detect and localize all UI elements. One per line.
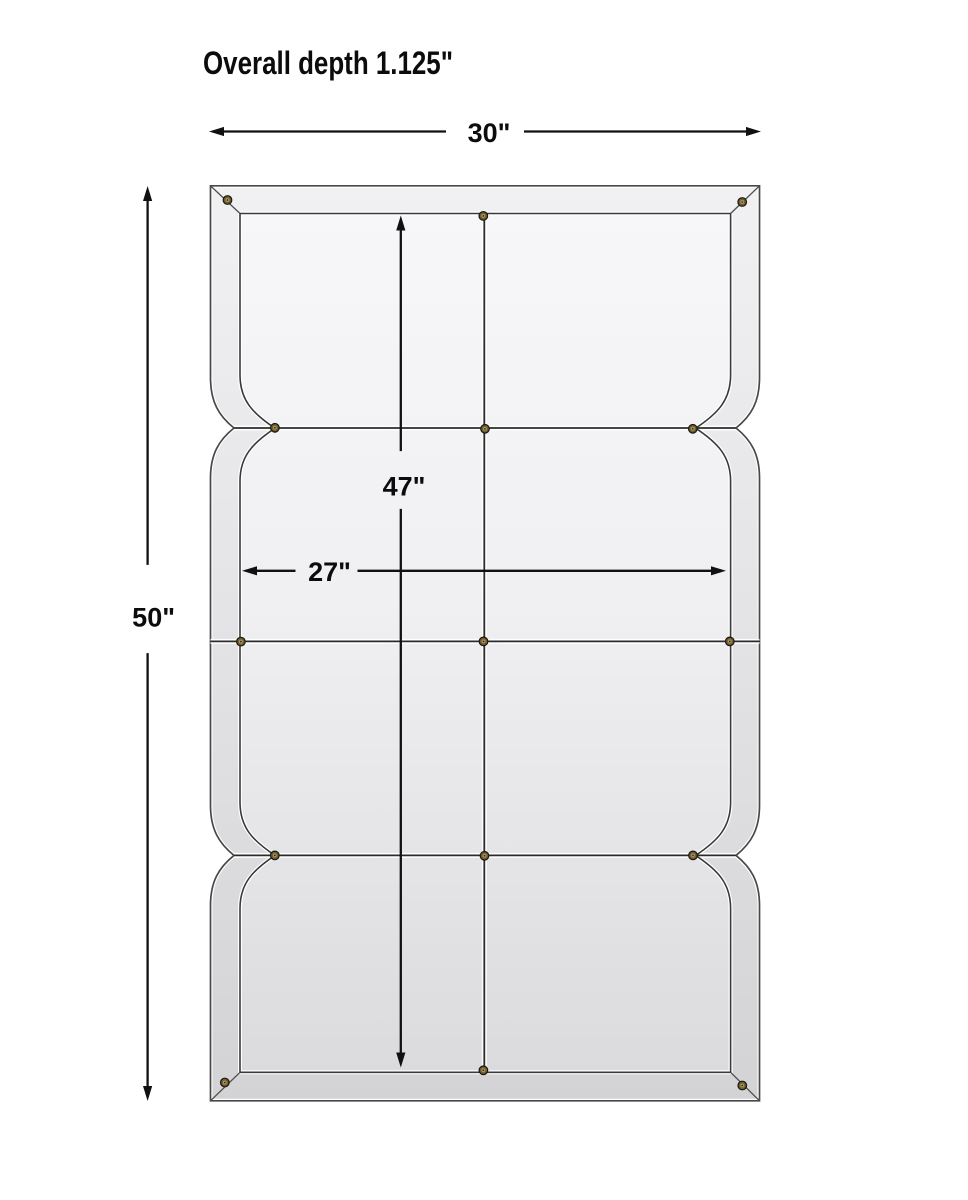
svg-text:27": 27"	[308, 557, 351, 587]
svg-text:50": 50"	[132, 603, 175, 633]
svg-text:47": 47"	[383, 472, 426, 502]
svg-text:30": 30"	[468, 118, 511, 148]
svg-text:Overall depth 1.125": Overall depth 1.125"	[203, 45, 453, 81]
